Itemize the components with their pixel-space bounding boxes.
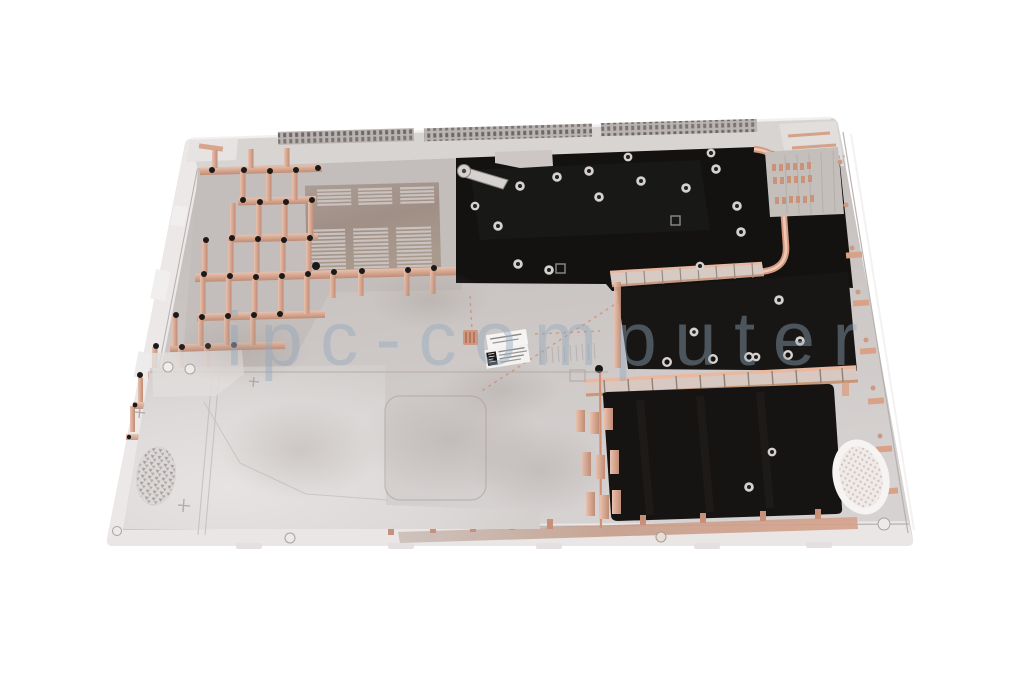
svg-text:ipc-computer: ipc-computer (226, 297, 875, 382)
